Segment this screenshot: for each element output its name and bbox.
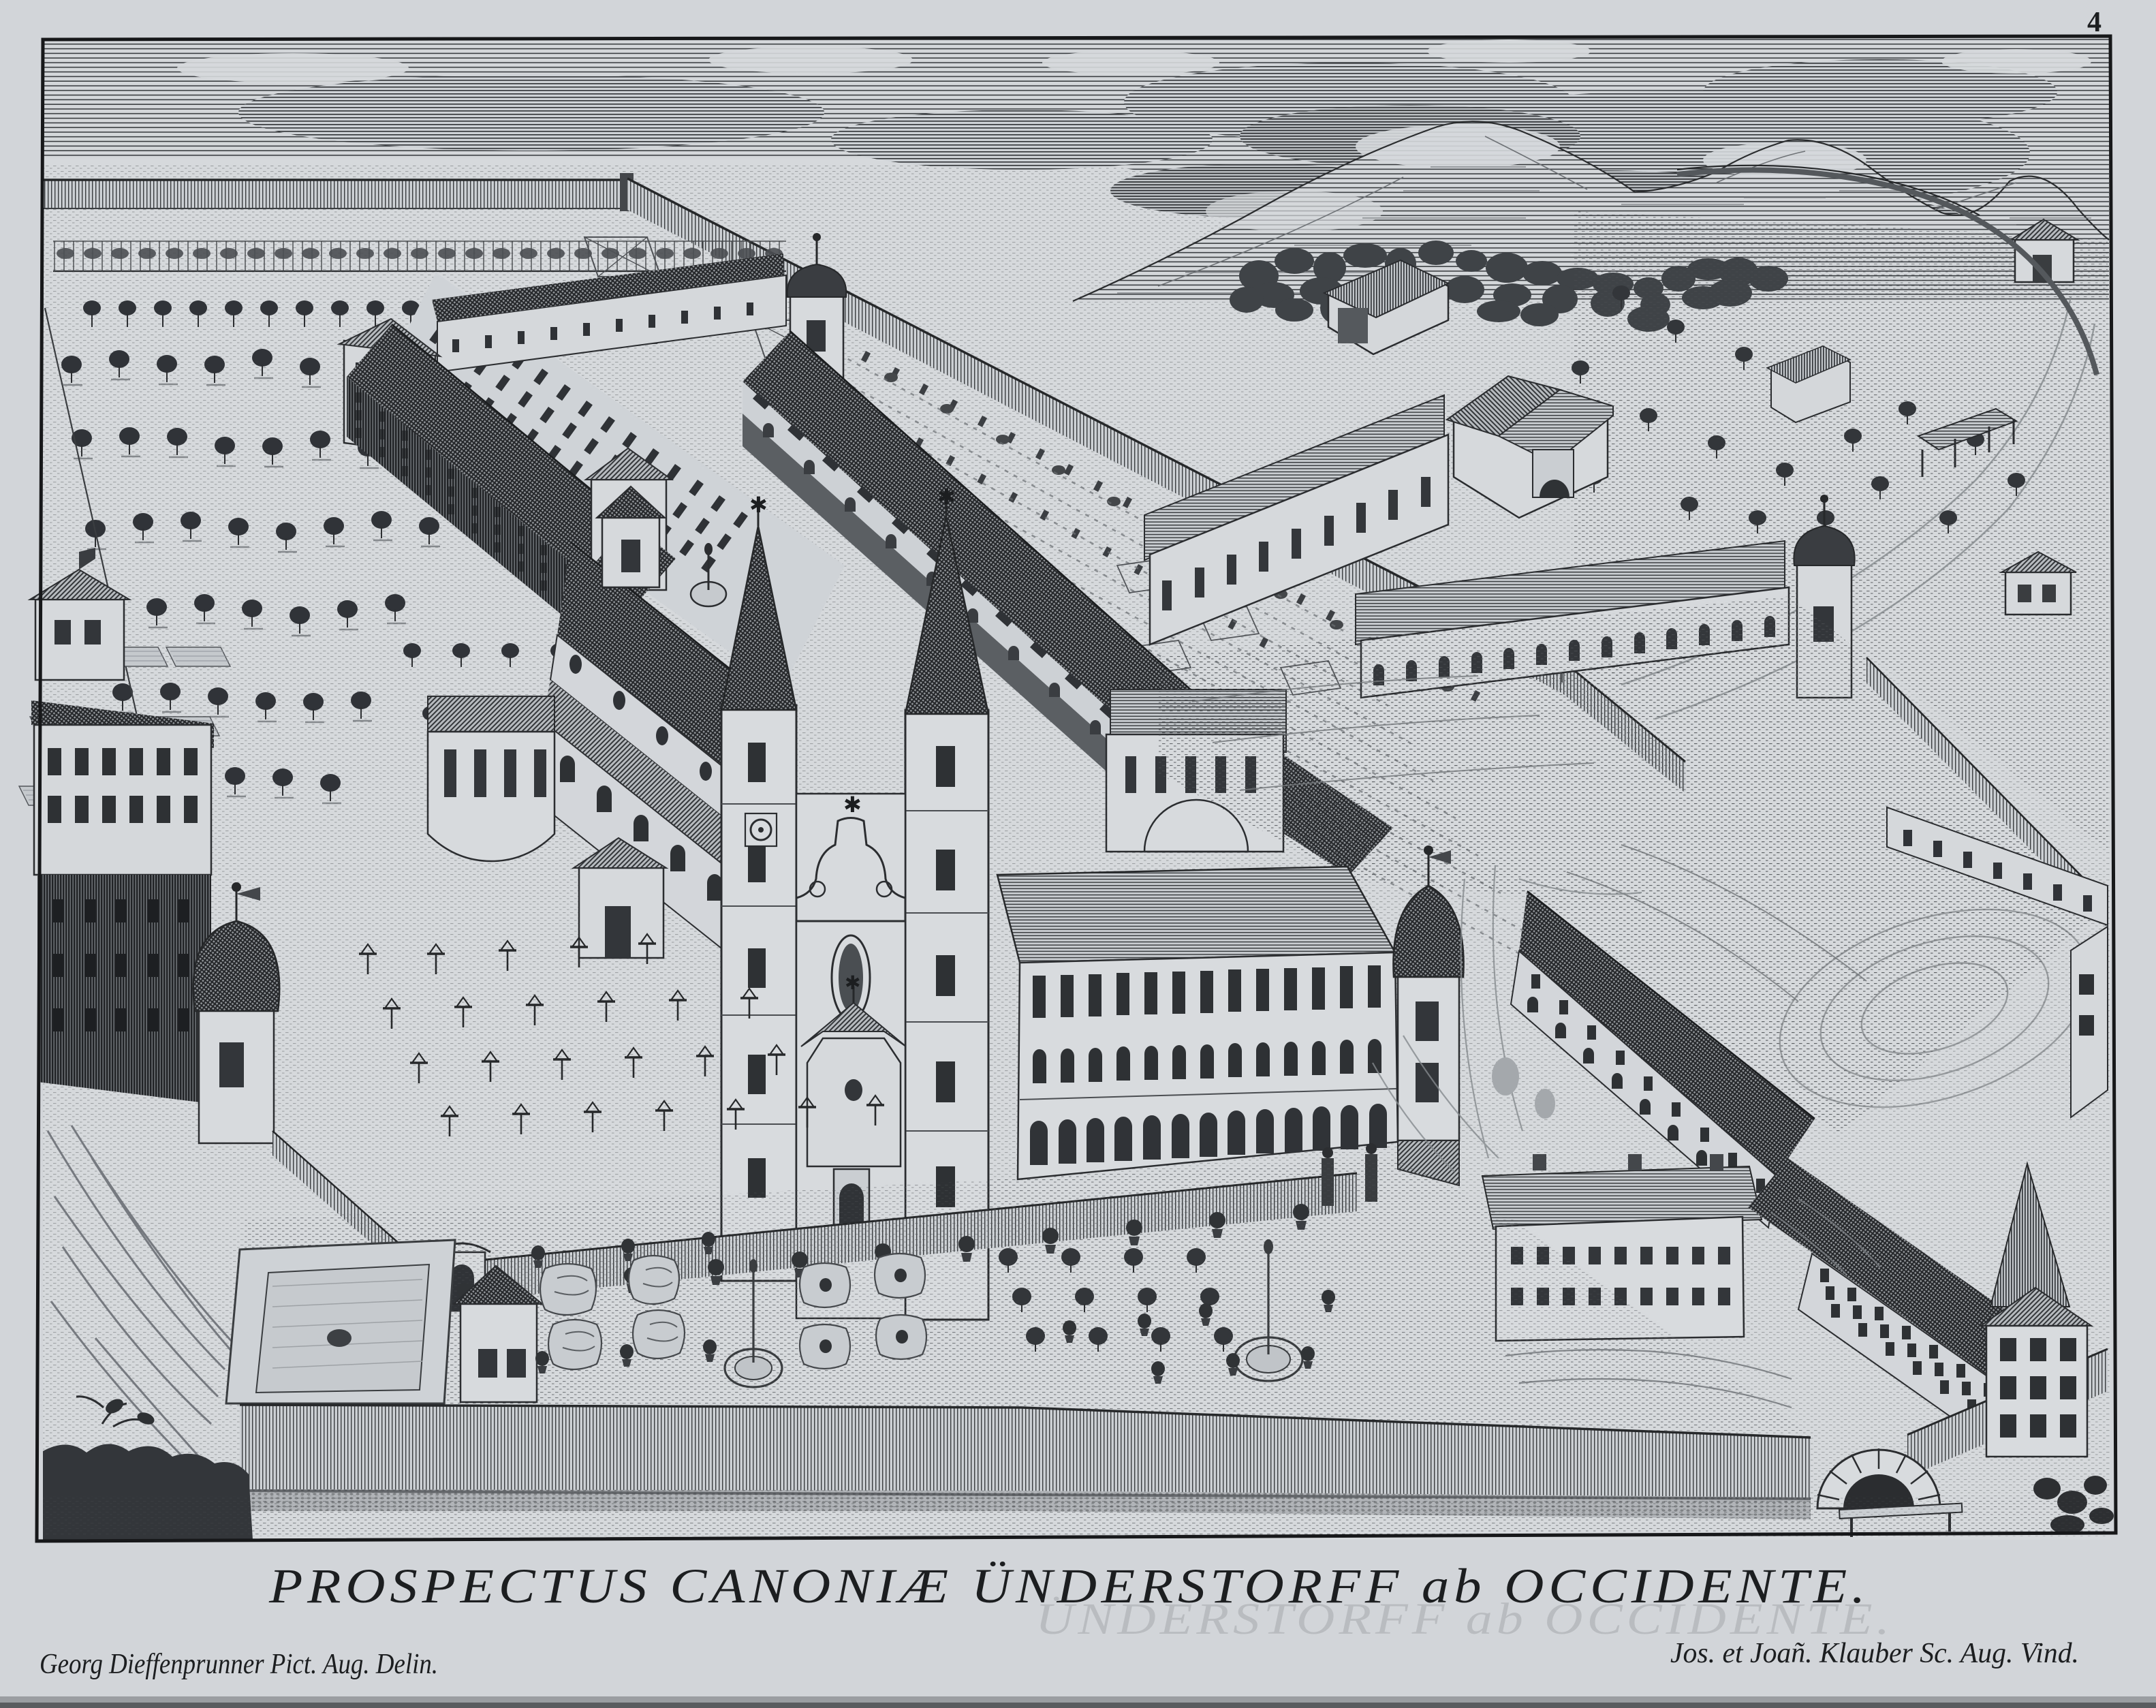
svg-text:PROSPECTUS CANONIÆ ÜNDERSTORFF: PROSPECTUS CANONIÆ ÜNDERSTORFF ab OCCIDE…: [268, 1559, 1870, 1613]
svg-text:✱: ✱: [749, 493, 768, 517]
svg-text:Jos. et Joañ. Klauber Sc. Aug.: Jos. et Joañ. Klauber Sc. Aug. Vind.: [1670, 1638, 2079, 1669]
svg-text:Georg Dieffenprunner Pict. Aug: Georg Dieffenprunner Pict. Aug. Delin.: [40, 1649, 438, 1680]
svg-text:✱: ✱: [843, 792, 862, 817]
svg-text:✱: ✱: [845, 973, 860, 994]
svg-text:4: 4: [2087, 7, 2102, 38]
svg-text:✱: ✱: [937, 484, 956, 509]
